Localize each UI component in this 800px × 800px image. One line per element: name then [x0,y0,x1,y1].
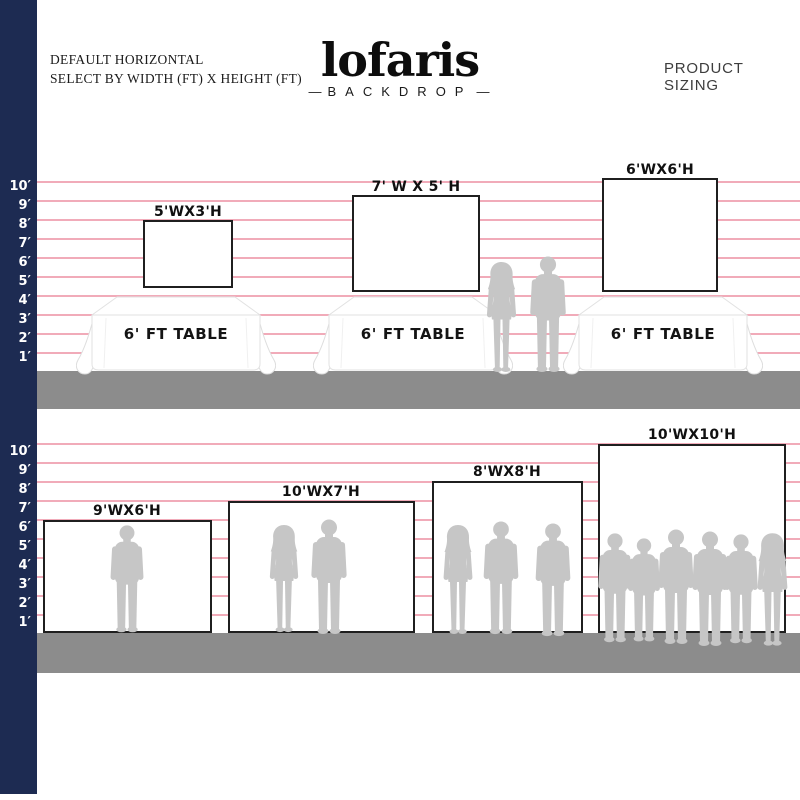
backdrop-6x6 [602,178,718,292]
top-ruler-6ft: 6′ [0,256,31,269]
trio-silhouette [440,516,578,640]
brand-sub-text: BACKDROP [328,84,473,99]
bottom-ruler-3ft: 3′ [0,578,31,591]
table-label: 6' FT TABLE [333,326,493,342]
group-silhouette [594,518,792,652]
backdrop-7x5 [352,195,480,292]
backdrop-5x3 [143,220,233,288]
table-label: 6' FT TABLE [583,326,743,342]
bottom-ruler-8ft: 8′ [0,483,31,496]
top-ruler-3ft: 3′ [0,313,31,326]
backdrop-size-label: 6'WX6'H [590,163,730,177]
top-ruler-1ft: 1′ [0,351,31,364]
top-ruler-8ft: 8′ [0,218,31,231]
backdrop-size-label: 8'WX8'H [437,465,577,479]
ruler-bar [0,0,37,794]
top-ruler-10ft: 10′ [0,180,31,193]
top-ruler-2ft: 2′ [0,332,31,345]
backdrop-size-label: 7' W X 5' H [346,180,486,194]
backdrop-size-label: 5'WX3'H [118,205,258,219]
bottom-ruler-6ft: 6′ [0,521,31,534]
top-ruler-7ft: 7′ [0,237,31,250]
table-label: 6' FT TABLE [96,326,256,342]
bottom-ruler-7ft: 7′ [0,502,31,515]
backdrop-size-label: 10'WX7'H [251,485,391,499]
couple-silhouette [482,254,574,376]
top-ruler-9ft: 9′ [0,199,31,212]
dash-left: — [309,84,324,99]
dash-right: — [476,84,491,99]
bottom-ruler-4ft: 4′ [0,559,31,572]
bottom-ruler-9ft: 9′ [0,464,31,477]
top-ruler-4ft: 4′ [0,294,31,307]
top-ruler-5ft: 5′ [0,275,31,288]
product-sizing-title: PRODUCT SIZING [664,60,794,94]
couple-silhouette [258,516,358,638]
bottom-ruler-2ft: 2′ [0,597,31,610]
single-man-silhouette [103,524,151,636]
backdrop-size-label: 10'WX10'H [612,428,772,442]
bottom-ruler-1ft: 1′ [0,616,31,629]
bottom-ruler-10ft: 10′ [0,445,31,458]
bottom-ruler-5ft: 5′ [0,540,31,553]
product-sizing-infographic: DEFAULT HORIZONTAL SELECT BY WIDTH (FT) … [0,0,800,800]
backdrop-size-label: 9'WX6'H [57,504,197,518]
